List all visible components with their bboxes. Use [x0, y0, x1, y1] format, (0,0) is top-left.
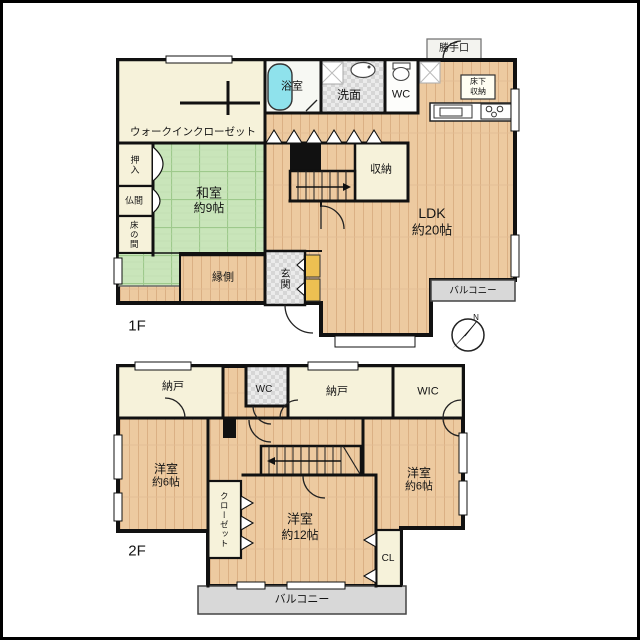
- label-bedroom-center: 洋室: [287, 513, 313, 526]
- floorplan-image: ウォークインクローゼット 浴室 洗面 WC 勝手口 床下 収納 収納 和室 約9…: [0, 0, 640, 640]
- label-bedroom-center-size: 約12帖: [281, 529, 318, 541]
- label-bedroom-right: 洋室: [407, 467, 431, 479]
- closet-door-markers: [241, 496, 253, 550]
- label-floor1: 1F: [128, 319, 146, 334]
- label-storage-1f: 収納: [370, 165, 392, 176]
- stairs-1f-upper: [290, 143, 321, 171]
- entrance-outside-step: [335, 336, 415, 347]
- label-wic-2f: WIC: [417, 387, 438, 398]
- label-balcony-2f: バルコニー: [275, 595, 330, 606]
- label-cl-2f: CL: [382, 554, 395, 564]
- sink-icon: [351, 63, 375, 78]
- label-oshiire: 押入: [130, 155, 139, 175]
- label-floor2: 2F: [128, 544, 146, 559]
- floor1-plan: [114, 39, 519, 351]
- label-compass-north: N: [473, 314, 479, 322]
- entrance-step: [305, 255, 320, 277]
- label-back-door: 勝手口: [439, 44, 469, 54]
- label-closet-2f: クローゼット: [220, 492, 229, 549]
- label-bedroom-left-size: 約6帖: [152, 478, 180, 489]
- wall-pillar: [223, 418, 236, 438]
- compass-icon: [452, 319, 484, 351]
- floorplan-drawing: [3, 3, 639, 639]
- label-balcony-1f: バルコニー: [449, 286, 496, 296]
- label-storage-left-2f: 納戸: [162, 382, 184, 393]
- sink-faucet-icon: [368, 66, 371, 69]
- label-bedroom-right-size: 約6帖: [405, 482, 433, 493]
- label-engawa: 縁側: [212, 273, 234, 284]
- entrance-step: [305, 279, 320, 301]
- label-toilet-1f: WC: [392, 90, 410, 101]
- toilet-icon: [393, 63, 410, 81]
- label-ldk-size: 約20帖: [412, 224, 452, 237]
- tatami-corner: [118, 253, 180, 286]
- label-underfloor-storage-2: 収納: [470, 88, 486, 96]
- label-tokonoma: 床の間: [130, 221, 139, 250]
- label-washroom: 洗面: [337, 89, 361, 101]
- label-toilet-2f: WC: [256, 385, 273, 395]
- label-storage-center-2f: 納戸: [326, 387, 348, 398]
- stairs-2f: [261, 446, 361, 475]
- label-ldk: LDK: [418, 206, 445, 220]
- stove-icon: [481, 104, 511, 119]
- label-bedroom-left: 洋室: [154, 463, 178, 475]
- label-butsuma: 仏間: [125, 197, 143, 206]
- stairs-1f: [290, 171, 355, 201]
- label-japanese-room-size: 約9帖: [194, 202, 225, 214]
- label-underfloor-storage-1: 床下: [470, 78, 486, 86]
- label-walk-in-closet-1f: ウォークインクローゼット: [130, 127, 256, 138]
- label-bathroom: 浴室: [281, 82, 303, 93]
- label-japanese-room: 和室: [196, 187, 222, 200]
- label-entrance: 玄関: [278, 268, 288, 290]
